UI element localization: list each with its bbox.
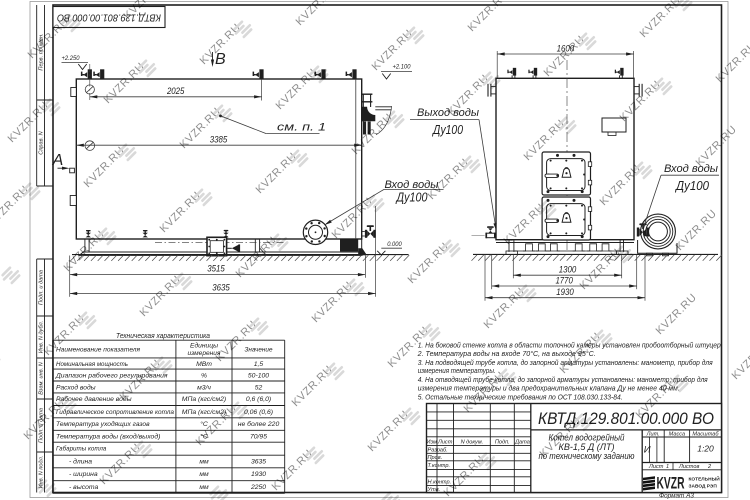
svg-text:+2.100: +2.100 — [393, 64, 411, 71]
svg-text:70/95: 70/95 — [250, 434, 267, 441]
svg-text:Температура воды (вход/выход): Температура воды (вход/выход) — [56, 433, 160, 441]
svg-text:Вход воды: Вход воды — [664, 163, 718, 175]
svg-text:1930: 1930 — [556, 287, 574, 297]
svg-text:Расход воды: Расход воды — [56, 383, 96, 391]
svg-text:Формат А3: Формат А3 — [659, 493, 694, 500]
svg-text:1: 1 — [666, 464, 669, 470]
svg-text:м3/ч: м3/ч — [197, 384, 211, 391]
svg-text:2250: 2250 — [250, 484, 266, 491]
svg-text:Разраб.: Разраб. — [428, 448, 448, 454]
svg-text:Пров.: Пров. — [428, 455, 443, 461]
svg-text:KVZR.RU: KVZR.RU — [654, 292, 700, 338]
svg-text:Т.контр.: Т.контр. — [428, 463, 451, 469]
svg-text:Значение: Значение — [245, 347, 273, 354]
svg-text:Ду100: Ду100 — [674, 179, 709, 193]
svg-text:Лист: Лист — [437, 440, 453, 446]
svg-text:Габариты котла: Габариты котла — [56, 445, 107, 453]
svg-text:Номинальная мощность: Номинальная мощность — [56, 361, 128, 368]
svg-text:КВТД.129.801.00.000 ВО: КВТД.129.801.00.000 ВО — [57, 11, 161, 23]
svg-text:Температура уходящих газов: Температура уходящих газов — [56, 420, 150, 428]
svg-text:МВт: МВт — [196, 361, 212, 368]
svg-text:KVZR: KVZR — [657, 474, 685, 493]
svg-text:Лит.: Лит. — [646, 431, 660, 437]
svg-text:Лист: Лист — [648, 464, 664, 470]
svg-text:Подп.: Подп. — [495, 440, 510, 446]
svg-text:измерения температуры и два пр: измерения температуры и два предохраните… — [418, 384, 680, 392]
svg-text:1. На боковой стенке котла в: 1. На боковой стенке котла в области топ… — [418, 342, 721, 350]
svg-text:Масса: Масса — [669, 431, 686, 437]
svg-text:KVZR.RU: KVZR.RU — [714, 40, 750, 86]
svg-text:Масштаб: Масштаб — [692, 431, 719, 437]
svg-text:KVZR.RU: KVZR.RU — [730, 337, 750, 383]
svg-text:3515: 3515 — [207, 264, 225, 274]
svg-text:1,5: 1,5 — [254, 361, 264, 368]
svg-text:+2.250: +2.250 — [62, 55, 80, 62]
svg-text:1930: 1930 — [251, 471, 266, 478]
svg-text:0.000: 0.000 — [387, 241, 402, 248]
svg-text:мм: мм — [199, 484, 209, 491]
svg-text:KVZR.RU: KVZR.RU — [734, 0, 750, 1]
svg-text:1770: 1770 — [555, 275, 573, 285]
svg-text:Ду100: Ду100 — [431, 123, 463, 137]
svg-text:1300: 1300 — [559, 265, 577, 275]
svg-text:см. п. 1: см. п. 1 — [277, 121, 326, 133]
svg-text:И: И — [644, 445, 651, 456]
svg-text:Взам. инв. N: Взам. инв. N — [39, 361, 45, 395]
svg-text:3635: 3635 — [212, 283, 230, 293]
svg-text:0,06 (0,6): 0,06 (0,6) — [244, 409, 273, 416]
svg-text:Утв.: Утв. — [427, 487, 441, 493]
svg-text:50-100: 50-100 — [248, 372, 269, 379]
svg-text:измерения температуры.: измерения температуры. — [418, 368, 496, 375]
svg-text:Подп. и дата: Подп. и дата — [39, 270, 45, 305]
svg-text:N докум.: N докум. — [461, 440, 484, 446]
svg-text:- высота: - высота — [69, 484, 98, 491]
svg-text:- длина: - длина — [69, 458, 92, 466]
svg-text:Изм: Изм — [427, 440, 438, 446]
svg-text:- ширина: - ширина — [69, 471, 98, 478]
svg-text:Ду100: Ду100 — [395, 191, 428, 205]
svg-text:52: 52 — [255, 384, 263, 391]
svg-text:мм: мм — [199, 471, 209, 478]
svg-text:Наименование показателя: Наименование показателя — [56, 347, 140, 354]
svg-text:A: A — [52, 152, 64, 169]
svg-text:1:20: 1:20 — [697, 444, 714, 454]
svg-text:Техническая характеристика: Техническая характеристика — [116, 331, 210, 340]
svg-text:0,6 (6,0): 0,6 (6,0) — [246, 396, 271, 403]
svg-text:KVZR.RU: KVZR.RU — [674, 208, 720, 254]
svg-text:Справ. N: Справ. N — [39, 130, 45, 154]
svg-text:3385: 3385 — [210, 134, 228, 144]
svg-text:Гидравлическое сопротивление к: Гидравлическое сопротивление котла — [56, 408, 174, 416]
svg-text:2025: 2025 — [166, 86, 184, 96]
svg-text:мм: мм — [199, 459, 209, 466]
svg-text:Единицы: Единицы — [190, 342, 218, 350]
svg-text:5. Остальные технические треб: 5. Остальные технические требования по О… — [418, 393, 623, 401]
svg-text:3635: 3635 — [251, 459, 266, 466]
svg-text:не более 220: не более 220 — [238, 420, 280, 428]
svg-text:%: % — [201, 372, 207, 379]
svg-text:МПа (кгс/см2): МПа (кгс/см2) — [182, 396, 226, 403]
svg-text:ЗАВОД РЭП: ЗАВОД РЭП — [689, 484, 718, 490]
svg-text:Дата: Дата — [514, 440, 530, 446]
svg-text:Листов: Листов — [678, 464, 699, 470]
svg-text:KVZR.RU: KVZR.RU — [0, 184, 31, 230]
